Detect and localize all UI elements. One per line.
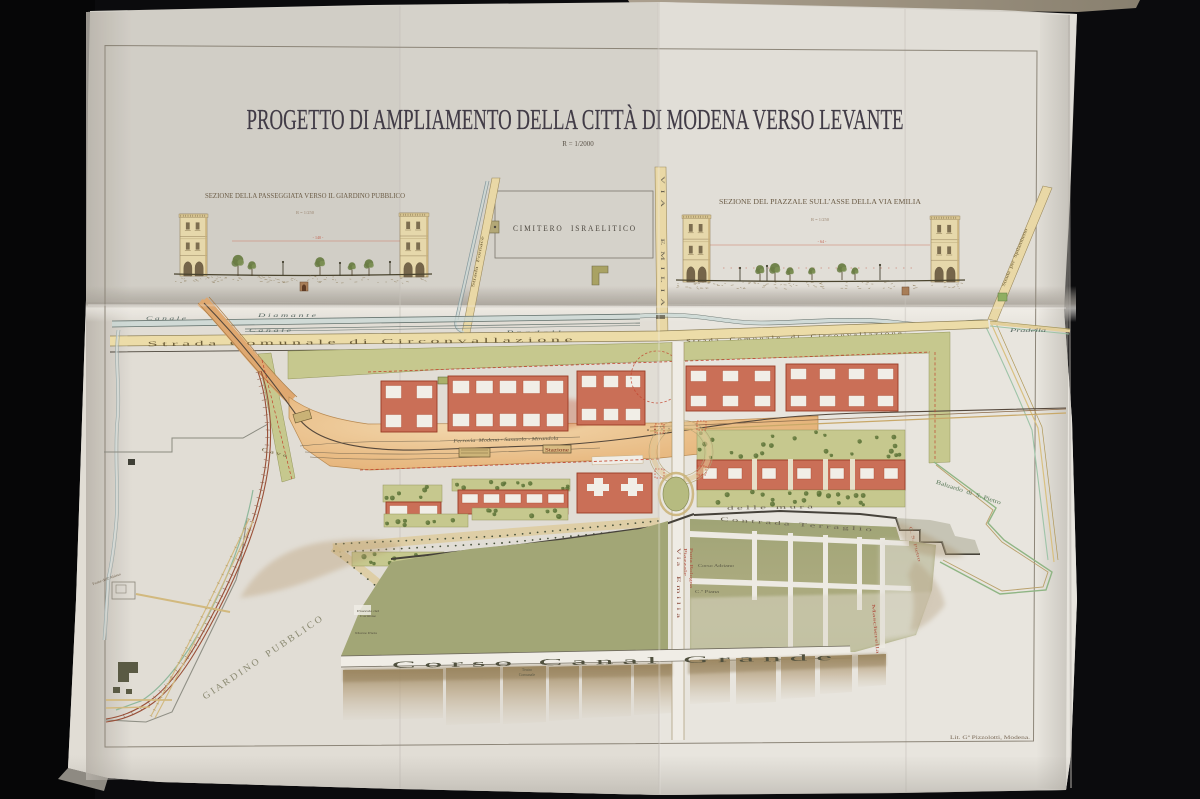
svg-text:SEZIONE DELLA PASSEGGIATA VERS: SEZIONE DELLA PASSEGGIATA VERSO IL GIARD… <box>205 192 405 200</box>
svg-text:Monte Pieta: Monte Pieta <box>355 631 378 635</box>
svg-text:E m i l i a: E m i l i a <box>675 576 680 620</box>
svg-text:R = 1/250: R = 1/250 <box>296 210 315 215</box>
svg-text:Piazzale: Piazzale <box>683 548 688 576</box>
svg-text:Piazzale del: Piazzale del <box>357 609 379 613</box>
svg-text:C.º Piana: C.º Piana <box>695 589 719 594</box>
svg-text:C a n a l e: C a n a l e <box>249 328 292 334</box>
svg-text:- 64 -: - 64 - <box>818 239 827 244</box>
svg-text:Lit. Gª Pizzolotti, Modena.: Lit. Gª Pizzolotti, Modena. <box>950 735 1031 741</box>
svg-text:Stazione: Stazione <box>545 449 570 454</box>
svg-text:Corso Adriano: Corso Adriano <box>698 563 734 568</box>
svg-text:Porta Bologna: Porta Bologna <box>689 548 694 588</box>
svg-text:C a n a l e: C a n a l e <box>146 316 187 322</box>
svg-text:VIA EMILIA: VIA EMILIA <box>659 176 665 312</box>
svg-text:Pradella: Pradella <box>1008 328 1046 334</box>
svg-text:R = 1/250: R = 1/250 <box>811 217 830 222</box>
svg-text:R = 1/2000: R = 1/2000 <box>562 140 594 148</box>
svg-text:Comunale: Comunale <box>519 672 536 677</box>
svg-text:Carmine: Carmine <box>360 614 377 618</box>
svg-text:V i a: V i a <box>675 548 680 567</box>
svg-text:SEZIONE DEL PIAZZALE SULL’ASSE: SEZIONE DEL PIAZZALE SULL’ASSE DELLA VIA… <box>719 198 921 206</box>
svg-text:PROGETTO DI AMPLIAMENTO DELLA: PROGETTO DI AMPLIAMENTO DELLA CITTÀ DI M… <box>247 105 904 136</box>
svg-text:- 140 -: - 140 - <box>313 235 324 240</box>
svg-text:D i a m a n t e: D i a m a n t e <box>256 313 317 319</box>
svg-text:CIMITERO ISRAELITICO: CIMITERO ISRAELITICO <box>513 224 637 233</box>
